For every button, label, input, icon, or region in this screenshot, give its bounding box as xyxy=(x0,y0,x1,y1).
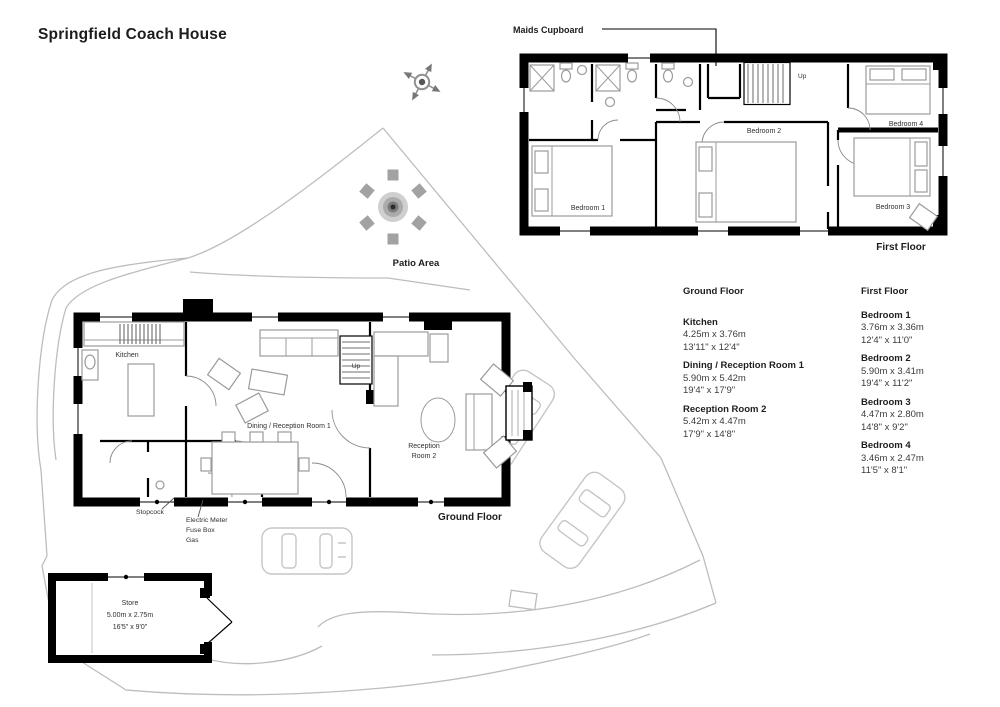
staircase xyxy=(744,63,790,105)
legend-room-metric: 5.90m x 5.42m xyxy=(683,373,858,386)
legend-room-name: Bedroom 2 xyxy=(861,353,993,366)
dining-table xyxy=(212,442,298,494)
staircase xyxy=(340,336,372,384)
legend-room-imperial: 13'11" x 12'4" xyxy=(683,342,858,355)
floorplan-page: Springfield Coach House xyxy=(0,0,1000,707)
legend-room-metric: 5.42m x 4.47m xyxy=(683,416,858,429)
ground-floor-plan: Up xyxy=(74,299,533,544)
room-label-dining: Dining / Reception Room 1 xyxy=(247,423,331,430)
legend-room-metric: 4.47m x 2.80m xyxy=(861,409,993,422)
legend-room-imperial: 19'4" x 17'9" xyxy=(683,385,858,398)
legend-room-metric: 5.90m x 3.41m xyxy=(861,366,993,379)
kitchen-island xyxy=(128,364,154,416)
legend-room-imperial: 19'4" x 11'2" xyxy=(861,378,993,391)
fuse-box-label: Fuse Box xyxy=(186,527,215,534)
legend-room-imperial: 17'9" x 14'8" xyxy=(683,429,858,442)
legend-room-imperial: 12'4" x 11'0" xyxy=(861,335,993,348)
maids-cupboard-label: Maids Cupboard xyxy=(513,25,584,35)
stopcock-label: Stopcock xyxy=(136,509,165,516)
patio-chair xyxy=(388,170,399,181)
electric-meter-label: Electric Meter xyxy=(186,517,228,524)
legend-room: Bedroom 2 5.90m x 3.41m 19'4" x 11'2" xyxy=(861,353,993,391)
compass-rose-icon xyxy=(394,54,451,111)
patio-area: Patio Area xyxy=(359,170,440,270)
up-label: Up xyxy=(798,73,807,80)
patio-chair xyxy=(359,183,374,198)
legend-room-imperial: 11'5" x 8'1" xyxy=(861,465,993,478)
legend-first-floor: First Floor Bedroom 1 3.76m x 3.36m 12'4… xyxy=(861,286,993,484)
legend-room-name: Kitchen xyxy=(683,317,858,330)
legend-room: Bedroom 4 3.46m x 2.47m 11'5" x 8'1" xyxy=(861,440,993,478)
up-label: Up xyxy=(352,363,361,370)
kitchen-counter xyxy=(84,322,184,346)
room-label-bedroom1: Bedroom 1 xyxy=(571,205,605,212)
room-label-bedroom4: Bedroom 4 xyxy=(889,121,923,128)
wc-basin xyxy=(156,481,164,489)
patio-chair xyxy=(411,215,426,230)
legend-room-name: Bedroom 3 xyxy=(861,397,993,410)
patio-chair xyxy=(359,215,374,230)
store-metric: 5.00m x 2.75m xyxy=(107,612,153,619)
cabinet xyxy=(430,334,448,362)
legend-room-name: Reception Room 2 xyxy=(683,404,858,417)
first-floor-caption: First Floor xyxy=(876,242,926,253)
car-top-view xyxy=(262,528,352,574)
legend-ground-floor: Ground Floor Kitchen 4.25m x 3.76m 13'11… xyxy=(683,286,858,447)
legend-room: Reception Room 2 5.42m x 4.47m 17'9" x 1… xyxy=(683,404,858,442)
corner-sofa xyxy=(374,332,428,356)
room-label-reception: Room 2 xyxy=(412,453,437,460)
patio-chair xyxy=(388,234,399,245)
gas-label: Gas xyxy=(186,537,199,544)
sofa xyxy=(260,330,338,356)
room-label-bedroom3: Bedroom 3 xyxy=(876,204,910,211)
sofa xyxy=(466,394,492,450)
room-label-bedroom2: Bedroom 2 xyxy=(747,128,781,135)
patio-chair xyxy=(411,183,426,198)
porch-steps xyxy=(506,382,532,440)
legend-heading: Ground Floor xyxy=(683,286,858,299)
legend-room-metric: 3.76m x 3.36m xyxy=(861,322,993,335)
driveway xyxy=(318,560,716,655)
legend-room: Bedroom 1 3.76m x 3.36m 12'4" x 11'0" xyxy=(861,310,993,348)
legend-room-metric: 3.46m x 2.47m xyxy=(861,453,993,466)
legend-room-name: Bedroom 1 xyxy=(861,310,993,323)
legend-room: Bedroom 3 4.47m x 2.80m 14'8" x 9'2" xyxy=(861,397,993,435)
store-outbuilding: Store 5.00m x 2.75m 16'5" x 9'0" xyxy=(52,572,232,659)
patio-table xyxy=(378,192,408,222)
store-imperial: 16'5" x 9'0" xyxy=(113,624,148,631)
room-label-kitchen: Kitchen xyxy=(115,352,138,359)
store-label: Store xyxy=(122,600,139,607)
ground-floor-caption: Ground Floor xyxy=(438,512,502,523)
legend-room: Dining / Reception Room 1 5.90m x 5.42m … xyxy=(683,360,858,398)
legend-room-imperial: 14'8" x 9'2" xyxy=(861,422,993,435)
room-label-reception: Reception xyxy=(408,443,440,450)
legend-room-metric: 4.25m x 3.76m xyxy=(683,329,858,342)
legend-room-name: Dining / Reception Room 1 xyxy=(683,360,858,373)
legend-heading: First Floor xyxy=(861,286,993,299)
legend-room-name: Bedroom 4 xyxy=(861,440,993,453)
chimney xyxy=(183,299,213,315)
legend-room: Kitchen 4.25m x 3.76m 13'11" x 12'4" xyxy=(683,317,858,355)
first-floor-plan: Up xyxy=(513,25,948,253)
car-top-view xyxy=(536,468,630,573)
patio-area-label: Patio Area xyxy=(393,258,440,269)
